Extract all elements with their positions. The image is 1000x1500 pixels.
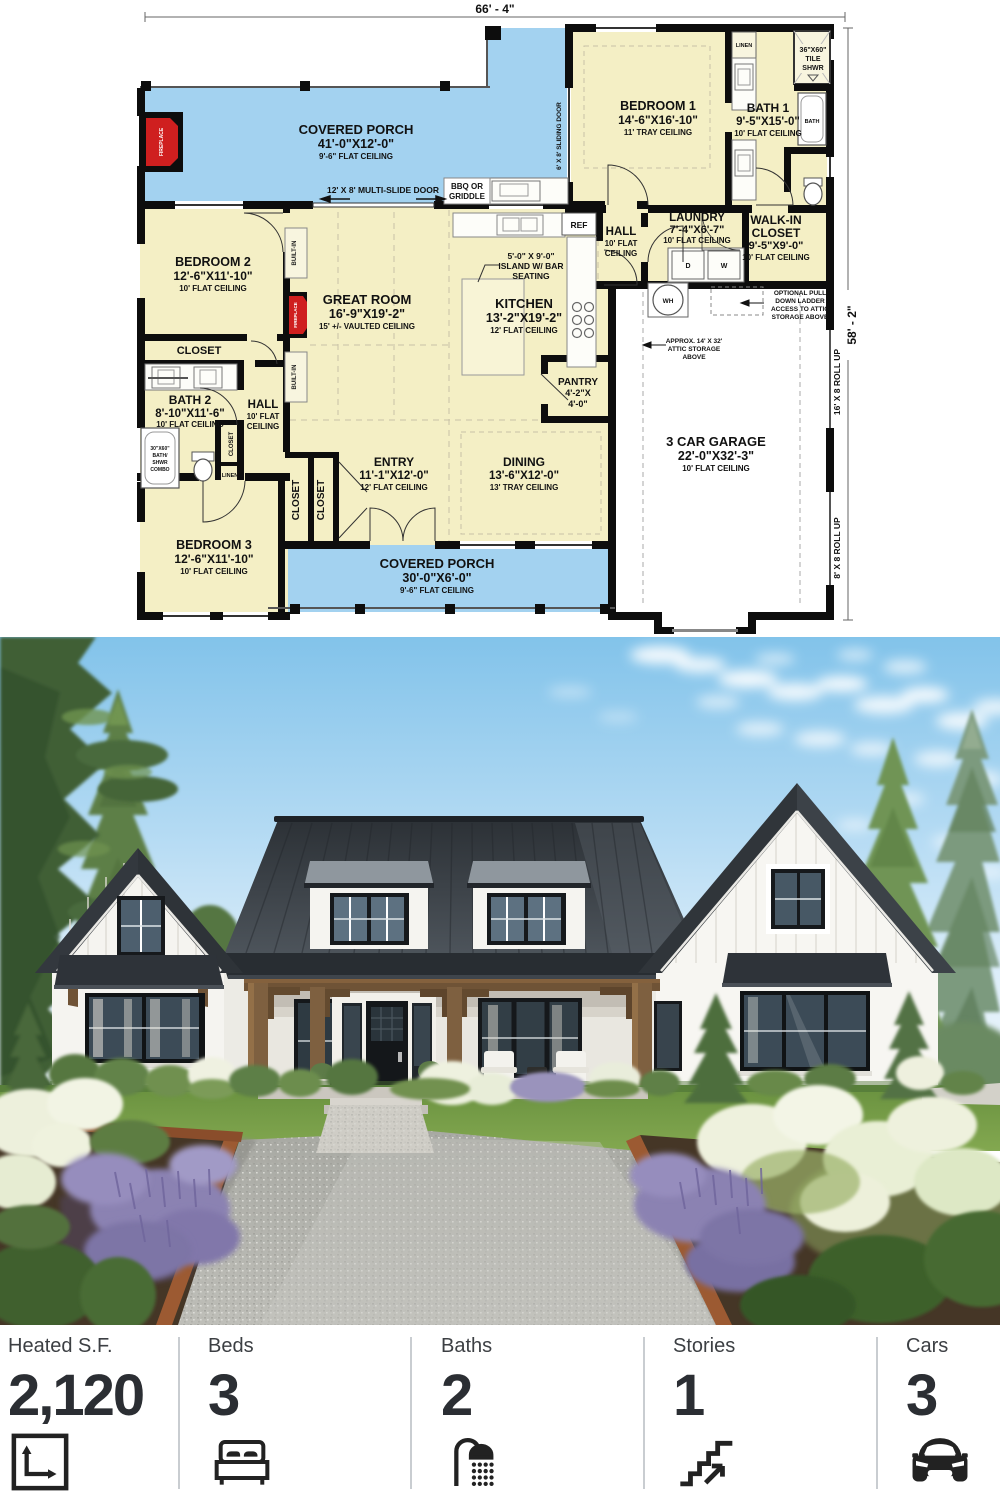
svg-text:16' X 8 ROLL UP: 16' X 8 ROLL UP: [832, 349, 842, 415]
svg-text:30'-0"X6'-0": 30'-0"X6'-0": [402, 571, 471, 585]
svg-text:WH: WH: [663, 298, 674, 305]
svg-text:7'-4"X6'-7": 7'-4"X6'-7": [670, 224, 725, 236]
svg-text:SHWR: SHWR: [152, 460, 168, 466]
svg-text:5'-0" X 9'-0": 5'-0" X 9'-0": [507, 251, 554, 261]
svg-text:FIREPLACE: FIREPLACE: [159, 127, 165, 156]
svg-text:APPROX. 14' X 32': APPROX. 14' X 32': [666, 338, 723, 345]
svg-text:9'-5"X9'-0": 9'-5"X9'-0": [749, 240, 804, 252]
svg-text:9'-6" FLAT CEILING: 9'-6" FLAT CEILING: [319, 152, 393, 161]
svg-text:COMBO: COMBO: [150, 467, 169, 473]
svg-text:9'-5"X15'-0": 9'-5"X15'-0": [736, 116, 800, 128]
svg-text:STORAGE ABOVE: STORAGE ABOVE: [772, 314, 829, 321]
svg-text:4'-2"X: 4'-2"X: [565, 388, 590, 398]
svg-text:10' FLAT: 10' FLAT: [605, 239, 638, 248]
svg-text:BATH/: BATH/: [153, 453, 169, 459]
svg-text:COVERED PORCH: COVERED PORCH: [380, 556, 495, 571]
svg-text:ATTIC STORAGE: ATTIC STORAGE: [668, 346, 721, 353]
svg-text:11' TRAY CEILING: 11' TRAY CEILING: [624, 128, 692, 137]
svg-text:12' X 8' MULTI-SLIDE DOOR: 12' X 8' MULTI-SLIDE DOOR: [327, 185, 439, 195]
svg-text:3 CAR GARAGE: 3 CAR GARAGE: [666, 434, 766, 449]
svg-text:9'-6" FLAT CEILING: 9'-6" FLAT CEILING: [400, 586, 474, 595]
svg-text:66' - 4": 66' - 4": [475, 2, 514, 16]
svg-text:10' FLAT CEILING: 10' FLAT CEILING: [734, 129, 802, 138]
svg-text:BATH 2: BATH 2: [169, 393, 212, 407]
svg-text:GREAT ROOM: GREAT ROOM: [323, 292, 412, 307]
svg-text:10' FLAT CEILING: 10' FLAT CEILING: [682, 464, 750, 473]
svg-text:LINEN: LINEN: [736, 43, 753, 49]
svg-text:8'-10"X11'-6": 8'-10"X11'-6": [155, 408, 224, 420]
svg-text:HALL: HALL: [606, 226, 637, 238]
svg-text:GRIDDLE: GRIDDLE: [449, 192, 486, 201]
svg-text:12' FLAT CEILING: 12' FLAT CEILING: [360, 483, 428, 492]
svg-text:ENTRY: ENTRY: [374, 455, 414, 469]
svg-text:10' FLAT CEILING: 10' FLAT CEILING: [742, 253, 810, 262]
svg-text:8' X 8 ROLL UP: 8' X 8 ROLL UP: [832, 517, 842, 579]
svg-text:CEILING: CEILING: [247, 422, 279, 431]
svg-text:14'-6"X16'-10": 14'-6"X16'-10": [618, 113, 698, 127]
svg-text:HALL: HALL: [248, 399, 279, 411]
svg-text:36"X60": 36"X60": [800, 47, 827, 54]
svg-text:13'-6"X12'-0": 13'-6"X12'-0": [489, 470, 559, 482]
svg-text:CLOSET: CLOSET: [177, 345, 222, 357]
svg-text:13' TRAY CEILING: 13' TRAY CEILING: [490, 483, 559, 492]
svg-text:KITCHEN: KITCHEN: [495, 296, 553, 311]
svg-text:11'-1"X12'-0": 11'-1"X12'-0": [359, 470, 428, 482]
svg-text:41'-0"X12'-0": 41'-0"X12'-0": [318, 137, 394, 151]
svg-text:WALK-IN: WALK-IN: [750, 213, 801, 227]
svg-text:BUILT-IN: BUILT-IN: [292, 241, 298, 266]
svg-text:SEATING: SEATING: [512, 271, 550, 281]
svg-text:CLOSET: CLOSET: [752, 226, 801, 240]
svg-text:PANTRY: PANTRY: [558, 377, 598, 388]
svg-text:LINEN: LINEN: [222, 473, 239, 479]
svg-text:DOWN LADDER: DOWN LADDER: [775, 298, 825, 305]
svg-text:16'-9"X19'-2": 16'-9"X19'-2": [329, 307, 405, 321]
svg-text:10' FLAT: 10' FLAT: [247, 412, 280, 421]
svg-text:ACCESS TO ATTIC: ACCESS TO ATTIC: [771, 306, 829, 313]
svg-text:4'-0": 4'-0": [568, 399, 587, 409]
svg-text:FIREPLACE: FIREPLACE: [293, 302, 298, 328]
svg-text:12'-6"X11'-10": 12'-6"X11'-10": [174, 552, 253, 566]
svg-text:BATH: BATH: [805, 119, 820, 125]
svg-text:6' X 8' SLIDING DOOR: 6' X 8' SLIDING DOOR: [556, 102, 563, 170]
svg-text:BBQ OR: BBQ OR: [451, 182, 483, 191]
svg-text:10' FLAT CEILING: 10' FLAT CEILING: [179, 284, 247, 293]
svg-text:CLOSET: CLOSET: [291, 480, 302, 521]
svg-text:ABOVE: ABOVE: [682, 354, 706, 361]
svg-text:BEDROOM 1: BEDROOM 1: [620, 99, 696, 113]
svg-text:BEDROOM 2: BEDROOM 2: [175, 255, 251, 269]
svg-text:CLOSET: CLOSET: [229, 432, 235, 457]
svg-text:30"X60": 30"X60": [150, 446, 170, 452]
svg-text:10' FLAT CEILING: 10' FLAT CEILING: [663, 236, 731, 245]
svg-text:D: D: [685, 263, 690, 270]
svg-text:W: W: [721, 263, 728, 270]
svg-text:12'-6"X11'-10": 12'-6"X11'-10": [173, 269, 252, 283]
svg-text:12' FLAT CEILING: 12' FLAT CEILING: [490, 326, 558, 335]
svg-text:CEILING: CEILING: [605, 249, 637, 258]
svg-text:ISLAND W/ BAR: ISLAND W/ BAR: [498, 261, 563, 271]
svg-text:CLOSET: CLOSET: [316, 480, 327, 521]
svg-text:22'-0"X32'-3": 22'-0"X32'-3": [678, 449, 754, 463]
svg-text:15' +/- VAULTED CEILING: 15' +/- VAULTED CEILING: [319, 322, 415, 331]
svg-text:BEDROOM 3: BEDROOM 3: [176, 538, 252, 552]
svg-text:BATH 1: BATH 1: [747, 101, 790, 115]
svg-text:OPTIONAL PULL: OPTIONAL PULL: [774, 290, 826, 297]
svg-text:COVERED PORCH: COVERED PORCH: [299, 122, 414, 137]
svg-text:BUILT-IN: BUILT-IN: [292, 365, 298, 390]
svg-text:LAUNDRY: LAUNDRY: [669, 212, 725, 224]
svg-text:13'-2"X19'-2": 13'-2"X19'-2": [486, 311, 562, 325]
svg-text:REF: REF: [571, 220, 588, 230]
svg-text:TILE: TILE: [805, 56, 820, 63]
svg-text:10' FLAT CEILING: 10' FLAT CEILING: [180, 567, 248, 576]
svg-text:DINING: DINING: [503, 455, 545, 469]
svg-text:SHWR: SHWR: [802, 65, 823, 72]
svg-text:10' FLAT CEILING: 10' FLAT CEILING: [156, 420, 224, 429]
svg-text:58' - 2": 58' - 2": [845, 305, 859, 344]
